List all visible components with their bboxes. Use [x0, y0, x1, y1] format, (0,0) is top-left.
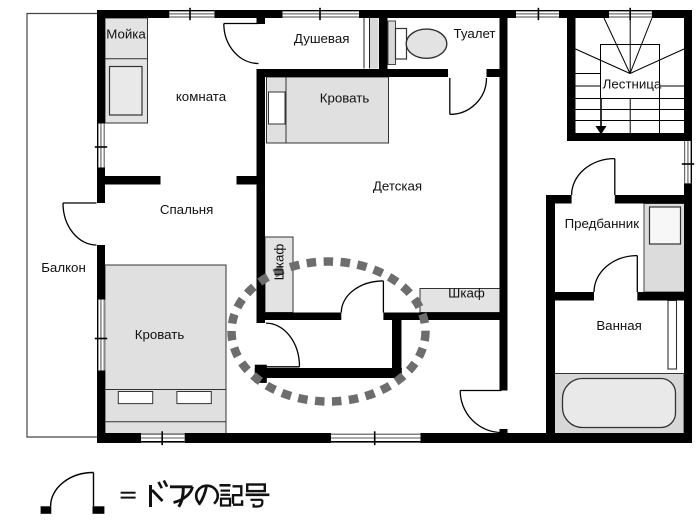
svg-text:Шкаф: Шкаф: [448, 286, 485, 301]
svg-text:Туалет: Туалет: [453, 26, 495, 41]
svg-text:Кровать: Кровать: [320, 91, 370, 106]
svg-text:Ванная: Ванная: [596, 318, 642, 333]
svg-text:Лестница: Лестница: [603, 77, 662, 92]
svg-text:Шкаф: Шкаф: [271, 244, 286, 281]
svg-text:комната: комната: [176, 89, 227, 104]
svg-text:Балкон: Балкон: [41, 260, 86, 275]
svg-text:Мойка: Мойка: [106, 27, 146, 42]
svg-text:Предбанник: Предбанник: [565, 216, 640, 231]
svg-text:Душевая: Душевая: [294, 31, 350, 46]
svg-text:Спальня: Спальня: [160, 202, 213, 217]
svg-text:Детская: Детская: [373, 179, 422, 194]
svg-text:Кровать: Кровать: [135, 327, 185, 342]
